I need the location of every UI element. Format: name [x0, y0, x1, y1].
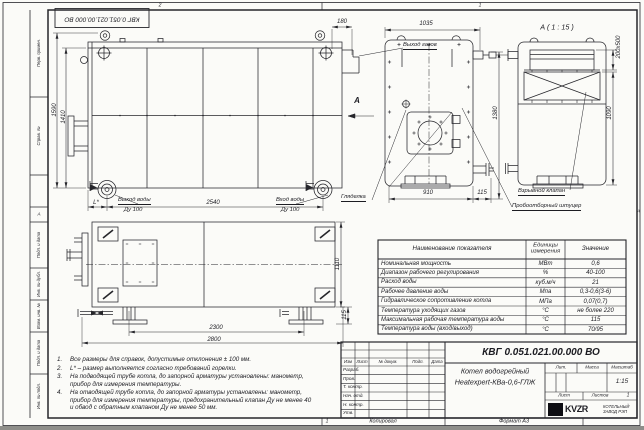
spec-col-name: Наименование показателя	[413, 246, 492, 252]
dim-1090: 1090	[607, 106, 613, 119]
dim-910: 910	[423, 190, 433, 196]
sheet-edge-shadow	[0, 426, 644, 430]
tb-sheet-label: Лист	[558, 394, 570, 399]
title-doc-number: КВГ 0.051.021.00.000 ВО	[482, 348, 600, 358]
spec-row-name: Максимальная рабочая температура воды	[381, 317, 504, 323]
spec-col-units: Единицы измерения	[526, 243, 566, 256]
spec-row-value: 21	[592, 280, 599, 286]
tb-mass-label: Масса	[585, 366, 599, 371]
spec-row-value: 115	[591, 317, 601, 323]
zone-number-bottom: 1	[326, 419, 329, 424]
drawing-sheet: 2 1 1 А А КВГ 0.051.021.00.000 ВО Перв. …	[0, 0, 644, 430]
dim-180: 180	[337, 19, 347, 25]
note-number: 1.	[57, 356, 67, 364]
dim-1035: 1035	[419, 21, 432, 27]
zone-number-top-left: 2	[159, 4, 162, 9]
note-number: 4.	[57, 389, 67, 412]
spec-col-value: Значение	[582, 246, 609, 252]
spec-row-name: Рабочее давление воды	[381, 289, 448, 295]
dim-1410: 1410	[61, 110, 67, 123]
label-water-outlet-dn: Ду 100	[124, 208, 142, 214]
spec-row-name: Расход воды	[381, 279, 417, 285]
tb-col-izm: Изм	[344, 360, 352, 364]
dim-2300: 2300	[209, 325, 222, 331]
tb-role-prov: Пров.	[343, 377, 355, 382]
spec-row-value: 0,6	[591, 261, 599, 267]
spec-row-name: Гидравлическое сопротивление котла	[381, 298, 491, 304]
dim-115-plan: 115	[342, 310, 348, 320]
copy-label: Копировал	[369, 419, 396, 425]
zone-letter-left: А	[37, 212, 40, 217]
frame-field-sprav-n: Справ. №	[37, 126, 41, 145]
view-arrow-letter: А	[354, 97, 360, 105]
spec-row-value: 0,07(0,7)	[583, 299, 607, 305]
dim-2540: 2540	[206, 200, 219, 206]
dim-l-star: L*	[93, 200, 99, 206]
label-water-inlet: Вход воды	[276, 198, 304, 205]
note-text: На отводящей трубе котла, до запорной ар…	[70, 389, 313, 412]
front-view	[385, 36, 508, 188]
tb-company-line2: ЗАВОД РЭП	[603, 410, 627, 414]
spec-row-name: Диапазон рабочего регулирования	[381, 270, 479, 276]
dim-1110: 1110	[335, 258, 341, 270]
label-water-outlet: Выход воды	[118, 198, 151, 205]
format-label: Формат А3	[499, 419, 529, 425]
spec-row-name: Температура воды (вход/выход)	[381, 326, 473, 332]
spec-row-value: 40-100	[586, 270, 605, 276]
frame-field-inv-podl: Инв. № подл.	[37, 383, 41, 409]
frame-field-inv-dubl: Инв. № дубл.	[37, 271, 41, 297]
section-title: А ( 1 : 15 )	[540, 23, 574, 30]
tb-role-nachotd: Нач. отд.	[343, 394, 364, 399]
dim-200x500: 200х500	[616, 35, 622, 58]
note-number: 3.	[57, 373, 67, 388]
kvzr-logo-icon	[548, 403, 563, 416]
leader-lines	[115, 48, 586, 207]
spec-row-units: °С	[542, 327, 549, 333]
note-item: 1.Все размеры для справок, допустимые от…	[57, 356, 313, 364]
dim-1380: 1380	[493, 106, 499, 119]
title-product-name-1: Котел водогрейный	[461, 367, 529, 374]
frame-field-vzam-inv: Взам. инв. №	[37, 303, 41, 329]
note-number: 2.	[57, 365, 67, 373]
rotated-doc-number-stamp: КВГ 0.051.021.00.000 ВО	[64, 15, 139, 22]
spec-row-units: Мпа	[540, 289, 552, 295]
zone-number-top-right: 1	[479, 4, 482, 9]
notes-block: 1.Все размеры для справок, допустимые от…	[57, 356, 313, 413]
tb-scale-label: Масштаб	[611, 366, 632, 371]
spec-row-units: МПа	[539, 299, 552, 305]
tb-col-podp: Подп.	[412, 360, 423, 364]
note-item: 4.На отводящей трубе котла, до запорной …	[57, 389, 313, 412]
dim-1590: 1590	[52, 103, 58, 116]
dim-2800: 2800	[207, 337, 220, 343]
spec-row-units: куб.м/ч	[536, 280, 556, 286]
dim-115-front: 115	[477, 190, 487, 196]
spec-row-units: МВт	[539, 261, 553, 267]
label-explosion-valve: Взрывной клапан	[518, 189, 565, 196]
note-item: 2.L* – размер выполняется согласно требо…	[57, 365, 313, 373]
spec-row-name: Номинальная мощность	[381, 261, 451, 267]
note-item: 3.На подводящей трубе котла, до запорной…	[57, 373, 313, 388]
spec-row-value: 0,3-0,6(3-6)	[580, 289, 611, 295]
frame-field-perv-primen: Перв. примен.	[37, 39, 41, 67]
section-view	[506, 38, 607, 188]
spec-row-value: не более 220	[577, 308, 614, 314]
note-text: Все размеры для справок, допустимые откл…	[70, 356, 313, 364]
kvzr-logo-text: KVZR	[565, 405, 588, 414]
tb-sheets-label: Листов	[592, 394, 609, 399]
tb-sheets-value: 1	[627, 394, 630, 399]
tb-scale-value: 1:15	[616, 379, 628, 385]
label-water-inlet-dn: Ду 100	[281, 208, 299, 214]
label-gas-outlet: Выход газов	[403, 43, 437, 50]
note-text: На подводящей трубе котла, до запорной а…	[70, 373, 313, 388]
spec-row-units: %	[543, 270, 548, 276]
frame-field-podp-data-1: Подп. и дата	[37, 232, 41, 258]
spec-row-value: 70/95	[588, 327, 603, 333]
tb-role-tkontr: Т. контр.	[343, 385, 363, 390]
spec-row-name: Температура уходящих газов	[381, 308, 466, 314]
tb-col-dokum: № докум.	[379, 360, 398, 364]
side-view	[68, 31, 359, 199]
note-text: L* – размер выполняется согласно требова…	[70, 365, 313, 373]
tb-lit-label: Лит.	[556, 366, 567, 371]
label-sampling-fitting: Пробоотборный штуцер	[512, 204, 581, 211]
plan-view	[67, 222, 342, 324]
tb-role-nkontr: Н. контр.	[343, 403, 364, 408]
tb-role-razrab: Разраб.	[343, 368, 360, 373]
tb-role-utv: Утв.	[343, 411, 353, 416]
tb-col-list: Лист	[356, 360, 367, 364]
spec-row-units: °С	[542, 317, 549, 323]
frame-field-podp-data-2: Подп. и дата	[37, 340, 41, 366]
title-product-name-2: Heatexpert-КВа-0,6-ГЛЖ	[455, 378, 536, 385]
spec-row-units: °С	[542, 308, 549, 314]
tb-col-data: Дата	[431, 360, 442, 364]
zone-letter-right: А	[637, 210, 640, 215]
label-sight-glass: Гляделка	[341, 195, 366, 202]
